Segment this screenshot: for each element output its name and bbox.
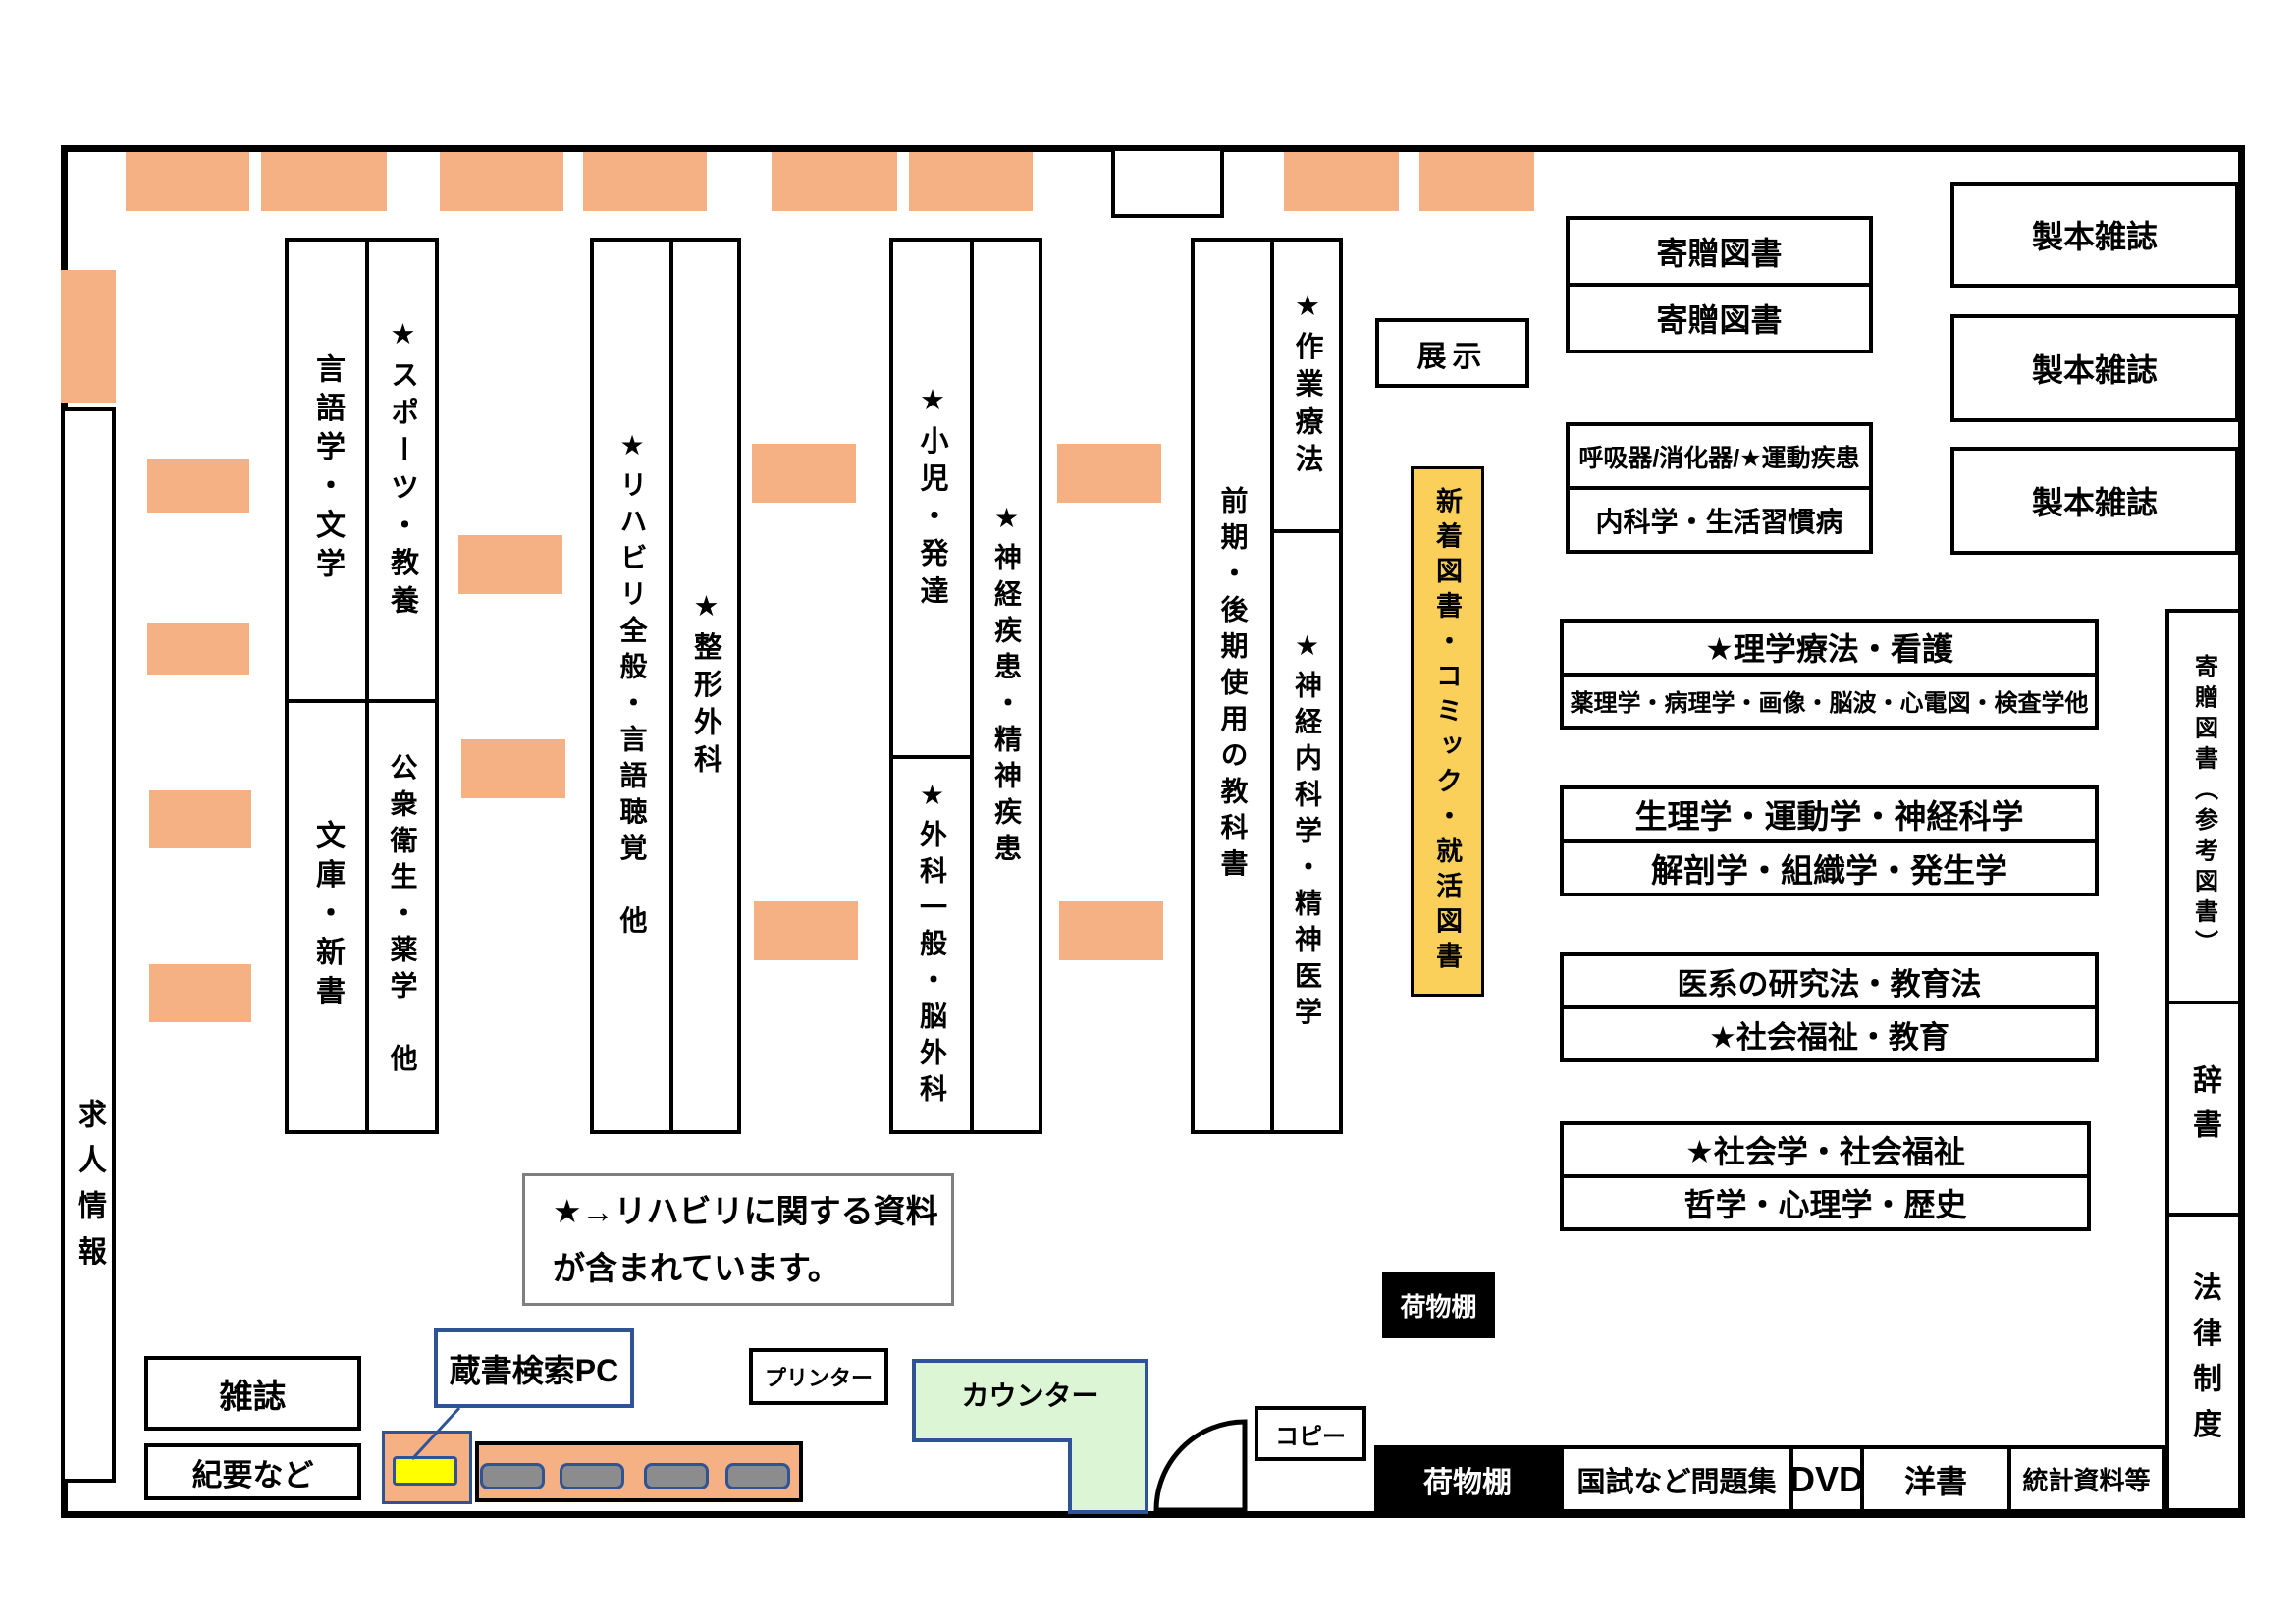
shelf-linguistics-literature: 言語学・文学 xyxy=(289,242,365,699)
shelf-sociology-social-welfare: ★社会学・社会福祉 xyxy=(1564,1125,2087,1174)
reading-desk xyxy=(458,535,562,594)
medicine-stack: 呼吸器/消化器/★運動疾患 内科学・生活習慣病 xyxy=(1566,422,1873,554)
counter-label: カウンター xyxy=(914,1370,1147,1419)
reading-desk xyxy=(1284,152,1399,211)
pt-stack: ★理学療法・看護 薬理学・病理学・画像・脳波・心電図・検査学他 xyxy=(1560,619,2099,730)
shelf-bound-journals-3: 製本雑誌 xyxy=(1950,447,2239,555)
shelf-rehabilitation-speech: ★リハビリ全般・言語聴覚 他 xyxy=(594,242,669,1130)
reading-desk xyxy=(440,152,563,211)
shelf-physical-therapy-nursing: ★理学療法・看護 xyxy=(1564,623,2095,673)
opac-label: 蔵書検索PC xyxy=(434,1328,634,1408)
shelf-orthopedics: ★整形外科 xyxy=(673,242,737,1130)
shelf-job-information: 求人情報 xyxy=(61,407,116,1483)
reading-desk xyxy=(149,964,251,1022)
shelf-semester-textbooks: 前期・後期使用の教科書 xyxy=(1195,242,1270,1130)
shelf-donated-books-1: 寄贈図書 xyxy=(1570,220,1869,283)
physiology-stack: 生理学・運動学・神経科学 解剖学・組織学・発生学 xyxy=(1560,785,2099,896)
shelf-dictionaries: 辞書 xyxy=(2169,1001,2238,1213)
shelf-magazines: 雑誌 xyxy=(144,1356,361,1431)
shelf-philosophy-psychology-history: 哲学・心理学・歴史 xyxy=(1564,1174,2087,1227)
shelf-respiratory-digestive: 呼吸器/消化器/★運動疾患 xyxy=(1570,426,1869,486)
pc-monitor xyxy=(560,1463,624,1489)
copier-box: コピー xyxy=(1255,1406,1366,1461)
shelf-neurology-psychiatry: ★神経内科学・精神医学 xyxy=(1274,529,1339,1130)
shelf-bound-journals-1: 製本雑誌 xyxy=(1950,182,2239,288)
shelf-public-health-pharmacy: 公衆衛生・薬学 他 xyxy=(369,699,435,1130)
reading-desk xyxy=(1419,152,1534,211)
shelf-physiology-kinesiology: 生理学・運動学・神経科学 xyxy=(1564,789,2095,839)
bottom-wall-row: 国試など問題集 DVD 洋書 統計資料等 xyxy=(1560,1445,2165,1513)
shelf-internal-medicine: 内科学・生活習慣病 xyxy=(1570,486,1869,550)
reading-desk xyxy=(1059,901,1163,960)
pc-monitor xyxy=(480,1463,545,1489)
shelf-donated-books-2: 寄贈図書 xyxy=(1570,283,1869,350)
new-arrivals-shelf: 新着図書・コミック・就活図書 xyxy=(1411,466,1484,997)
legend-note: ★→リハビリに関する資料 が含まれています。 xyxy=(522,1173,954,1306)
shelf-neuro-psychiatric-disease: ★神経疾患・精神疾患 xyxy=(974,242,1039,1130)
shelf-western-books: 洋書 xyxy=(1864,1449,2007,1509)
shelf-bulletins: 紀要など xyxy=(144,1443,361,1500)
legend-line-1: ★→リハビリに関する資料 xyxy=(553,1183,951,1240)
reading-desk xyxy=(461,739,565,798)
new-arrivals-label: 新着図書・コミック・就活図書 xyxy=(1428,487,1467,977)
shelf-surgery-neurosurgery: ★外科一般・脳外科 xyxy=(893,755,970,1130)
reading-desk xyxy=(147,459,249,513)
reading-desk xyxy=(754,901,858,960)
reading-desk xyxy=(147,623,249,675)
shelf-anatomy-histology: 解剖学・組織学・発生学 xyxy=(1564,839,2095,893)
library-floor-map: 求人情報 言語学・文学 文庫・新書 ★スポーツ・教養 公衆衛生・薬学 他 ★リハ… xyxy=(0,0,2296,1624)
shelf-medical-research-methods: 医系の研究法・教育法 xyxy=(1564,956,2095,1005)
shelf-paperbacks-new-books: 文庫・新書 xyxy=(289,699,365,1130)
shelf-block-d: 前期・後期使用の教科書 ★作業療法 ★神経内科学・精神医学 xyxy=(1191,238,1343,1134)
legend-line-2: が含まれています。 xyxy=(553,1240,951,1297)
shelf-pharmacology-pathology: 薬理学・病理学・画像・脳波・心電図・検査学他 xyxy=(1564,673,2095,727)
shelf-sports-liberal-arts: ★スポーツ・教養 xyxy=(369,242,435,699)
shelf-block-c: ★小児・発達 ★外科一般・脳外科 ★神経疾患・精神疾患 xyxy=(889,238,1042,1134)
printer-box: プリンター xyxy=(749,1348,888,1405)
exhibit-label: 展示 xyxy=(1417,332,1488,375)
exhibit-display: 展示 xyxy=(1375,318,1529,388)
reading-desk xyxy=(126,152,249,211)
reading-desk xyxy=(61,270,116,403)
reading-desk xyxy=(1057,444,1161,503)
shelf-statistics: 統計資料等 xyxy=(2011,1449,2162,1509)
shelf-job-information-label: 求人情報 xyxy=(67,1099,110,1281)
luggage-shelf-upper: 荷物棚 xyxy=(1382,1272,1495,1338)
opac-pc xyxy=(393,1456,457,1486)
reading-desk xyxy=(583,152,707,211)
shelf-dvd: DVD xyxy=(1793,1449,1860,1509)
reading-desk xyxy=(261,152,387,211)
luggage-shelf-lower: 荷物棚 xyxy=(1374,1445,1561,1513)
shelf-block-b: ★リハビリ全般・言語聴覚 他 ★整形外科 xyxy=(590,238,741,1134)
shelf-donated-reference: 寄贈図書（参考図書） xyxy=(2169,613,2238,1001)
shelf-social-welfare-education: ★社会福祉・教育 xyxy=(1564,1005,2095,1058)
pc-monitor xyxy=(725,1463,790,1489)
shelf-bound-journals-2: 製本雑誌 xyxy=(1950,314,2239,422)
shelf-occupational-therapy: ★作業療法 xyxy=(1274,242,1339,529)
shelf-exam-workbooks: 国試など問題集 xyxy=(1564,1449,1789,1509)
shelf-block-a: 言語学・文学 文庫・新書 ★スポーツ・教養 公衆衛生・薬学 他 xyxy=(285,238,439,1134)
reading-desk xyxy=(149,790,251,848)
wall-opening xyxy=(1111,147,1224,218)
donated-books-stack: 寄贈図書 寄贈図書 xyxy=(1566,216,1873,353)
reading-desk xyxy=(752,444,856,503)
shelf-law-system: 法律制度 xyxy=(2169,1213,2238,1508)
pc-monitor xyxy=(644,1463,709,1489)
right-wall-column: 寄贈図書（参考図書） 辞書 法律制度 xyxy=(2165,609,2242,1512)
sociology-stack: ★社会学・社会福祉 哲学・心理学・歴史 xyxy=(1560,1121,2091,1231)
shelf-pediatrics-development: ★小児・発達 xyxy=(893,242,970,755)
research-stack: 医系の研究法・教育法 ★社会福祉・教育 xyxy=(1560,952,2099,1062)
reading-desk xyxy=(909,152,1033,211)
reading-desk xyxy=(772,152,897,211)
